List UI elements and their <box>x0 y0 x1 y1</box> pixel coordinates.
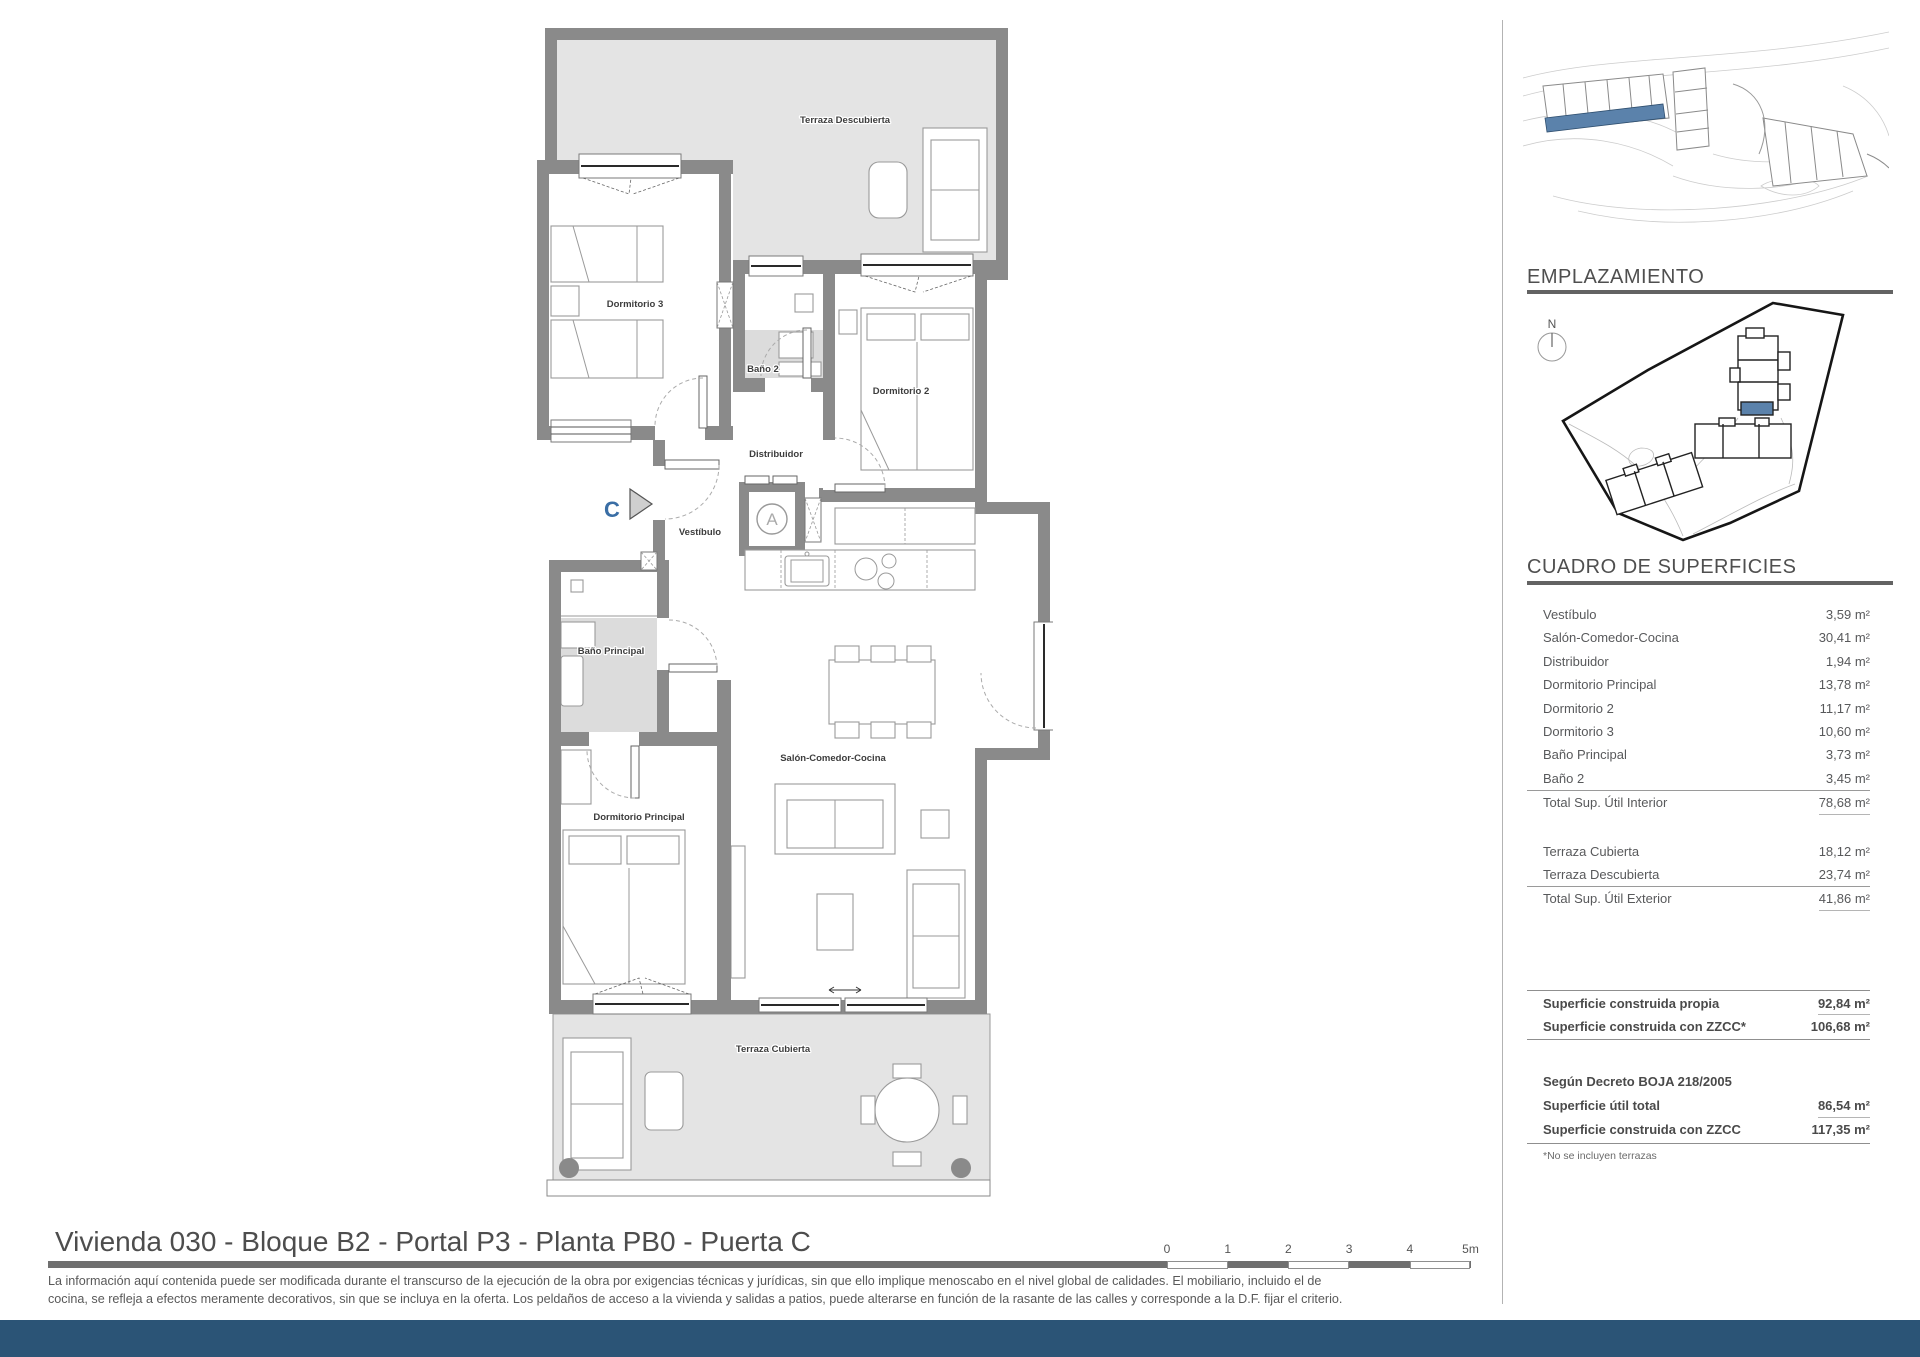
table-row: Baño Principal3,73 m² <box>1527 743 1870 766</box>
disclaimer-line: cocina, se refleja a efectos meramente d… <box>48 1290 1492 1308</box>
decree-rows: Superficie útil total86,54 m²Superficie … <box>1527 1094 1870 1144</box>
north-compass-icon: N <box>1538 317 1566 361</box>
scale-tick: 2 <box>1285 1242 1292 1256</box>
room-label-dormitorio2: Dormitorio 2 <box>873 386 929 397</box>
site-plan: N <box>1533 298 1895 556</box>
decree-heading: Según Decreto BOJA 218/2005 <box>1527 1070 1870 1094</box>
svg-text:N: N <box>1548 317 1557 331</box>
highlighted-unit <box>1741 402 1773 415</box>
room-label-bano-principal: Baño Principal <box>578 646 645 657</box>
scale-segment <box>1167 1261 1228 1269</box>
exterior-rows: Terraza Cubierta18,12 m²Terraza Descubie… <box>1527 840 1870 887</box>
emplazamiento-rule <box>1527 290 1893 294</box>
table-row: Superficie construida con ZZCC117,35 m² <box>1527 1118 1870 1141</box>
cuadro-heading: CUADRO DE SUPERFICIES <box>1527 556 1893 579</box>
site-buildings <box>1604 328 1791 515</box>
table-footnote: *No se incluyen terrazas <box>1527 1150 1870 1162</box>
table-row: Dormitorio 211,17 m² <box>1527 697 1870 720</box>
site-boundary <box>1563 303 1843 540</box>
total-label: Total Sup. Útil Exterior <box>1527 887 1672 910</box>
total-label: Total Sup. Útil Interior <box>1527 791 1667 814</box>
entry-marker: C <box>604 489 652 522</box>
table-row: Superficie construida propia92,84 m² <box>1527 992 1870 1015</box>
room-label-bano2: Baño 2 <box>747 364 779 375</box>
table-row: Baño 23,45 m² <box>1527 767 1870 790</box>
room-label-vestibulo: Vestíbulo <box>679 527 721 538</box>
table-row: Dormitorio Principal13,78 m² <box>1527 673 1870 696</box>
brochure-page: A C Terraza Descubierta Dormitorio 3 Bañ… <box>0 0 1920 1357</box>
planter <box>559 1158 579 1178</box>
interior-rows: Vestíbulo3,59 m²Salón-Comedor-Cocina30,4… <box>1527 603 1870 790</box>
scale-tick: 0 <box>1164 1242 1171 1256</box>
sheet-title: Vivienda 030 - Bloque B2 - Portal P3 - P… <box>55 1226 811 1258</box>
entry-letter: C <box>604 497 620 522</box>
room-label-dormitorio3: Dormitorio 3 <box>607 299 663 310</box>
exterior-total-row: Total Sup. Útil Exterior 41,86 m² <box>1527 886 1870 910</box>
floor-plan: A C Terraza Descubierta Dormitorio 3 Bañ… <box>533 20 1053 1205</box>
total-value: 78,68 m² <box>1819 791 1870 814</box>
scale-segment <box>1410 1261 1471 1269</box>
scale-bar: 012345m <box>1167 1240 1477 1270</box>
table-row: Terraza Descubierta23,74 m² <box>1527 863 1870 886</box>
footer-bar <box>0 1320 1920 1357</box>
table-row: Vestíbulo3,59 m² <box>1527 603 1870 626</box>
table-row: Salón-Comedor-Cocina30,41 m² <box>1527 626 1870 649</box>
room-label-dormitorio-principal: Dormitorio Principal <box>593 812 684 823</box>
vertical-divider <box>1502 20 1503 1304</box>
room-label-distribuidor: Distribuidor <box>749 449 803 460</box>
entry-arrow-icon <box>630 489 652 519</box>
table-row: Distribuidor1,94 m² <box>1527 650 1870 673</box>
scale-tick: 4 <box>1406 1242 1413 1256</box>
cuadro-rule <box>1527 581 1893 585</box>
scale-segment <box>1288 1261 1349 1269</box>
terrace-slab-edge <box>547 1180 990 1196</box>
scale-tick: 5m <box>1462 1242 1479 1256</box>
planter <box>951 1158 971 1178</box>
interior-total-row: Total Sup. Útil Interior 78,68 m² <box>1527 790 1870 814</box>
aerial-sketch <box>1523 26 1889 232</box>
lift-letter: A <box>766 510 778 529</box>
disclaimer: La información aquí contenida puede ser … <box>48 1272 1492 1309</box>
table-row: Dormitorio 310,60 m² <box>1527 720 1870 743</box>
built-rows: Superficie construida propia92,84 m²Supe… <box>1527 990 1870 1041</box>
emplazamiento-heading: EMPLAZAMIENTO <box>1527 266 1893 289</box>
table-row: Superficie construida con ZZCC*106,68 m² <box>1527 1015 1870 1038</box>
table-row: Superficie útil total86,54 m² <box>1527 1094 1870 1117</box>
disclaimer-line: La información aquí contenida puede ser … <box>48 1272 1492 1290</box>
scale-tick: 1 <box>1224 1242 1231 1256</box>
room-label-terraza-descubierta: Terraza Descubierta <box>800 115 891 126</box>
surface-table: Vestíbulo3,59 m²Salón-Comedor-Cocina30,4… <box>1527 603 1870 1162</box>
room-label-salon: Salón-Comedor-Cocina <box>780 753 886 764</box>
room-label-terraza-cubierta: Terraza Cubierta <box>736 1044 811 1055</box>
buildings-sketch <box>1543 68 1889 186</box>
scale-tick: 3 <box>1346 1242 1353 1256</box>
total-value: 41,86 m² <box>1819 887 1870 910</box>
table-row: Terraza Cubierta18,12 m² <box>1527 840 1870 863</box>
